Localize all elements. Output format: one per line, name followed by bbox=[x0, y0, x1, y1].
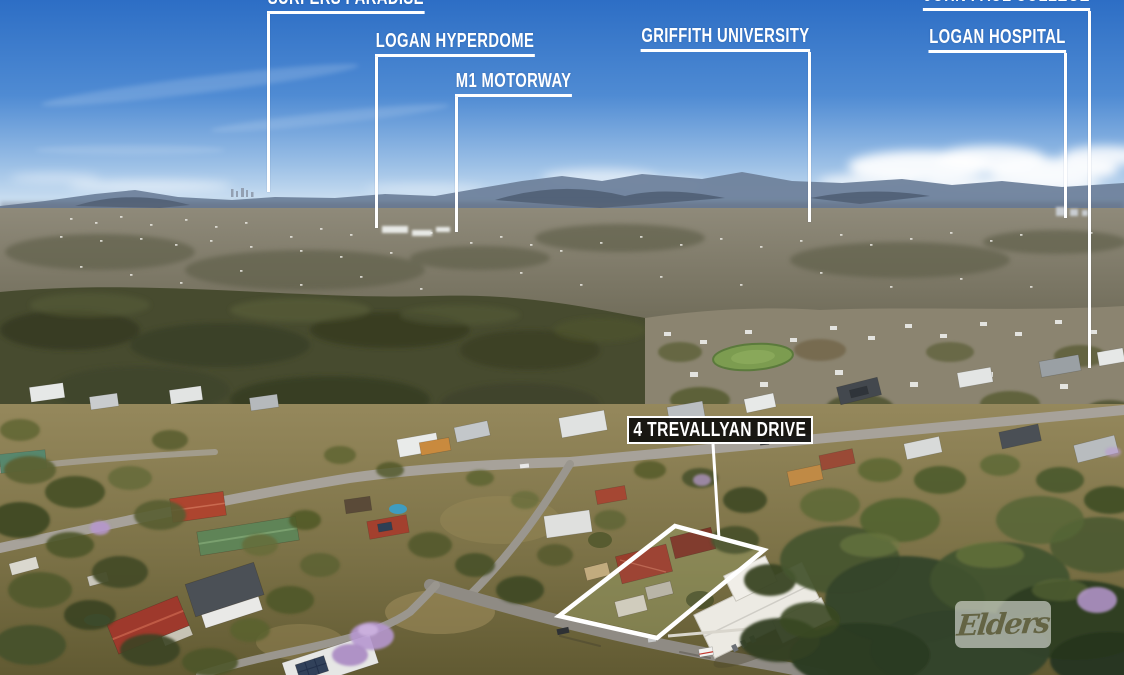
location-label: GRIFFITH UNIVERSITY bbox=[641, 25, 809, 47]
location-callout-logan-hospital: LOGAN HOSPITAL bbox=[928, 27, 1066, 53]
location-callout-griffith-university: GRIFFITH UNIVERSITY bbox=[640, 26, 810, 52]
property-address-callout: 4 TREVALLYAN DRIVE bbox=[627, 416, 813, 444]
callout-line-logan-hospital bbox=[1064, 53, 1067, 218]
location-label: JOHN PAUL COLLEGE bbox=[923, 0, 1089, 6]
callout-line-john-paul-college bbox=[1088, 11, 1091, 368]
aerial-photo: SURFERS PARADISE LOGAN HYPERDOME M1 MOTO… bbox=[0, 0, 1124, 675]
location-callout-surfers-paradise: SURFERS PARADISE bbox=[267, 0, 425, 14]
swimming-pool bbox=[389, 504, 407, 514]
callout-line-griffith-university bbox=[808, 52, 811, 222]
property-address-label: 4 TREVALLYAN DRIVE bbox=[634, 419, 807, 442]
callout-line-surfers-paradise bbox=[267, 14, 270, 192]
location-callout-logan-hyperdome: LOGAN HYPERDOME bbox=[375, 31, 535, 57]
aerial-photo-background bbox=[0, 0, 1124, 675]
location-label: LOGAN HOSPITAL bbox=[929, 26, 1065, 48]
location-callout-m1-motorway: M1 MOTORWAY bbox=[455, 71, 572, 97]
location-callout-john-paul-college: JOHN PAUL COLLEGE bbox=[922, 0, 1090, 11]
elders-watermark: Elders bbox=[955, 601, 1051, 648]
location-label: M1 MOTORWAY bbox=[456, 70, 572, 92]
callout-line-logan-hyperdome bbox=[375, 57, 378, 228]
location-label: LOGAN HYPERDOME bbox=[376, 30, 534, 52]
elders-logo-text: Elders bbox=[956, 608, 1050, 640]
callout-line-m1-motorway bbox=[455, 97, 458, 232]
location-label: SURFERS PARADISE bbox=[268, 0, 424, 9]
